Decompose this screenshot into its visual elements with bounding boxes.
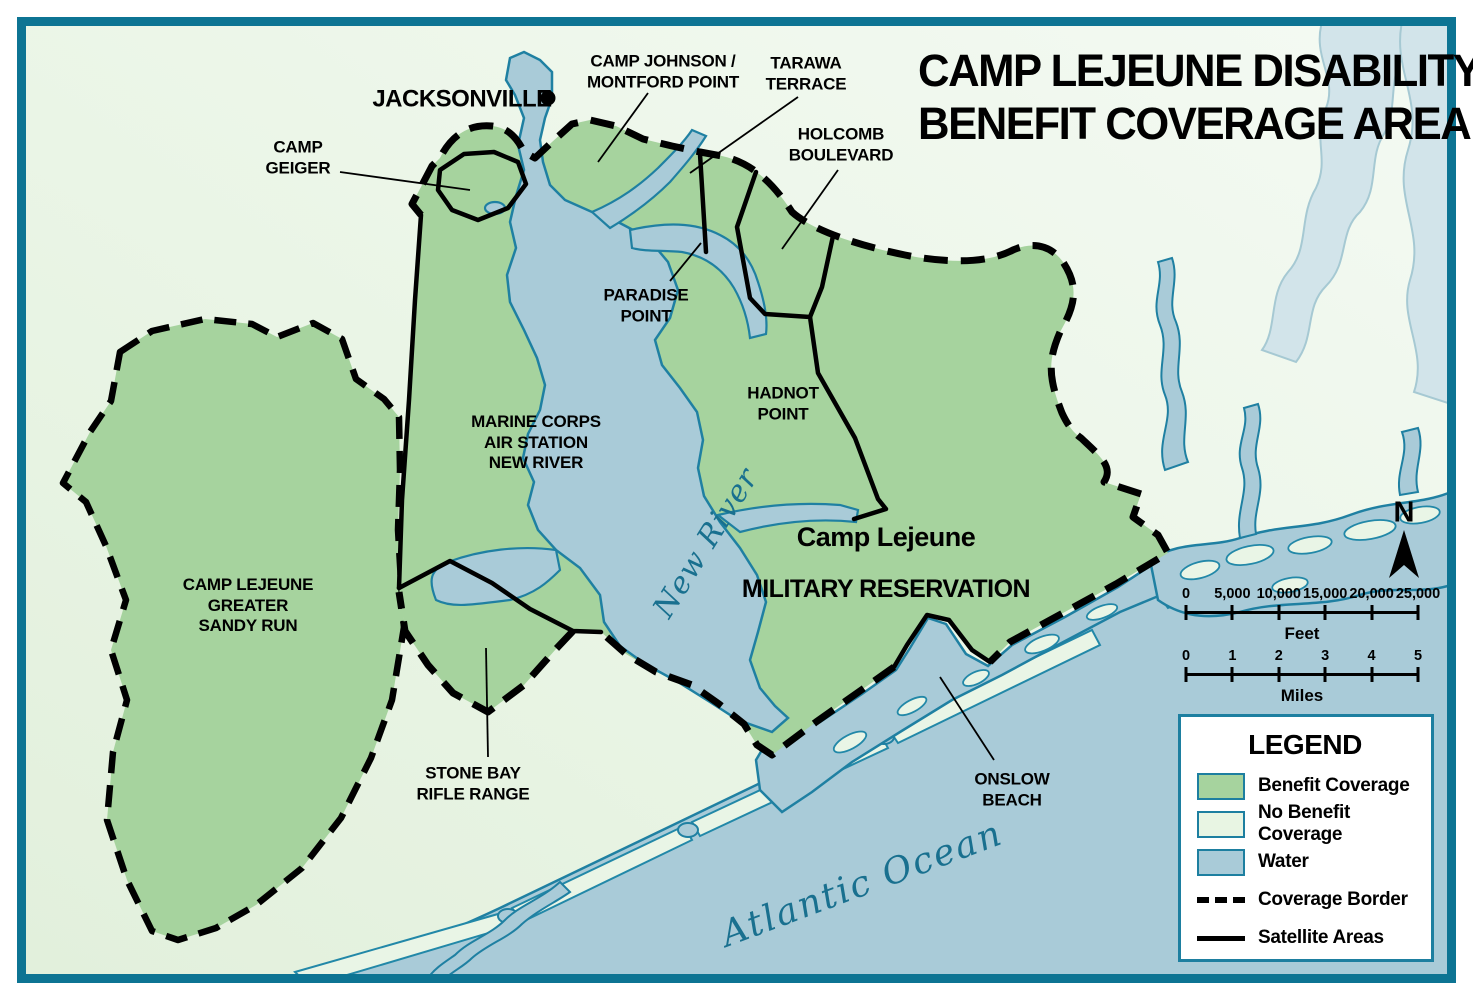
no-benefit-coverage-swatch bbox=[1197, 811, 1245, 838]
scale-tick-label: 2 bbox=[1275, 648, 1283, 664]
scale-tick-label: 4 bbox=[1368, 648, 1376, 664]
label-military-reservation: Camp Lejeune MILITARY RESERVATION bbox=[742, 500, 1030, 626]
scale-tick-label: 25,000 bbox=[1396, 586, 1440, 602]
label-military-reservation-line1: Camp Lejeune bbox=[742, 521, 1030, 554]
scale-tick-label: 0 bbox=[1182, 648, 1190, 664]
label-holcomb-boulevard: HOLCOMB BOULEVARD bbox=[789, 124, 894, 165]
scale-tick-label: 20,000 bbox=[1349, 586, 1393, 602]
scale-bar-feet-labels: 0 5,000 10,000 15,000 20,000 25,000 bbox=[1186, 586, 1418, 603]
scale-bar-miles-bar bbox=[1186, 667, 1418, 682]
scale-tick-label: 15,000 bbox=[1303, 586, 1347, 602]
legend-item-water: Water bbox=[1197, 847, 1431, 877]
legend-item-label: Benefit Coverage bbox=[1258, 775, 1409, 797]
north-label: N bbox=[1394, 497, 1415, 530]
label-camp-geiger: CAMP GEIGER bbox=[266, 137, 331, 178]
scale-bar-feet-unit: Feet bbox=[1186, 624, 1418, 644]
legend-item-label: Satellite Areas bbox=[1258, 927, 1384, 949]
label-paradise-point: PARADISE POINT bbox=[604, 285, 689, 326]
scale-tick-label: 10,000 bbox=[1257, 586, 1301, 602]
legend-title: LEGEND bbox=[1197, 729, 1413, 761]
solid-line-icon bbox=[1197, 936, 1245, 941]
legend-item-label: Coverage Border bbox=[1258, 889, 1408, 911]
map-title-line2: BENEFIT COVERAGE AREA bbox=[918, 97, 1436, 150]
map-title: CAMP LEJEUNE DISABILITY BENEFIT COVERAGE… bbox=[918, 44, 1436, 150]
scale-bar-feet: 0 5,000 10,000 15,000 20,000 25,000 Feet bbox=[1186, 586, 1418, 644]
legend-item-coverage-border: Coverage Border bbox=[1197, 885, 1431, 915]
label-military-reservation-line2: MILITARY RESERVATION bbox=[742, 575, 1030, 606]
label-stone-bay: STONE BAY RIFLE RANGE bbox=[416, 763, 529, 804]
label-hadnot-point: HADNOT POINT bbox=[747, 383, 819, 424]
scale-bar-miles: 0 1 2 3 4 5 Miles bbox=[1186, 648, 1418, 706]
label-onslow-beach: ONSLOW BEACH bbox=[974, 769, 1049, 810]
map-title-line1: CAMP LEJEUNE DISABILITY bbox=[918, 44, 1436, 97]
legend: LEGEND Benefit Coverage No Benefit Cover… bbox=[1178, 714, 1434, 962]
legend-item-benefit-coverage: Benefit Coverage bbox=[1197, 771, 1431, 801]
scale-tick-label: 5 bbox=[1414, 648, 1422, 664]
legend-item-label: Water bbox=[1258, 851, 1309, 873]
dashed-line-icon bbox=[1197, 897, 1245, 903]
scale-bar-feet-bar bbox=[1186, 605, 1418, 620]
scale-tick-label: 5,000 bbox=[1214, 586, 1250, 602]
map-page: CAMP LEJEUNE DISABILITY BENEFIT COVERAGE… bbox=[0, 0, 1473, 1000]
scale-bar-miles-unit: Miles bbox=[1186, 686, 1418, 706]
benefit-coverage-swatch bbox=[1197, 773, 1245, 800]
scale-tick-label: 3 bbox=[1321, 648, 1329, 664]
scale-bar-miles-labels: 0 1 2 3 4 5 bbox=[1186, 648, 1418, 665]
scale-tick-label: 1 bbox=[1228, 648, 1236, 664]
water-swatch bbox=[1197, 849, 1245, 876]
legend-item-satellite-areas: Satellite Areas bbox=[1197, 923, 1431, 953]
legend-item-label: No Benefit Coverage bbox=[1258, 802, 1431, 846]
label-camp-johnson: CAMP JOHNSON / MONTFORD POINT bbox=[587, 51, 739, 92]
scale-tick-label: 0 bbox=[1182, 586, 1190, 602]
legend-item-no-benefit-coverage: No Benefit Coverage bbox=[1197, 809, 1431, 839]
label-mcas-new-river: MARINE CORPS AIR STATION NEW RIVER bbox=[471, 412, 601, 474]
label-jacksonville: JACKSONVILLE bbox=[372, 84, 551, 113]
label-greater-sandy-run: CAMP LEJEUNE GREATER SANDY RUN bbox=[183, 575, 313, 637]
label-tarawa-terrace: TARAWA TERRACE bbox=[766, 53, 847, 94]
